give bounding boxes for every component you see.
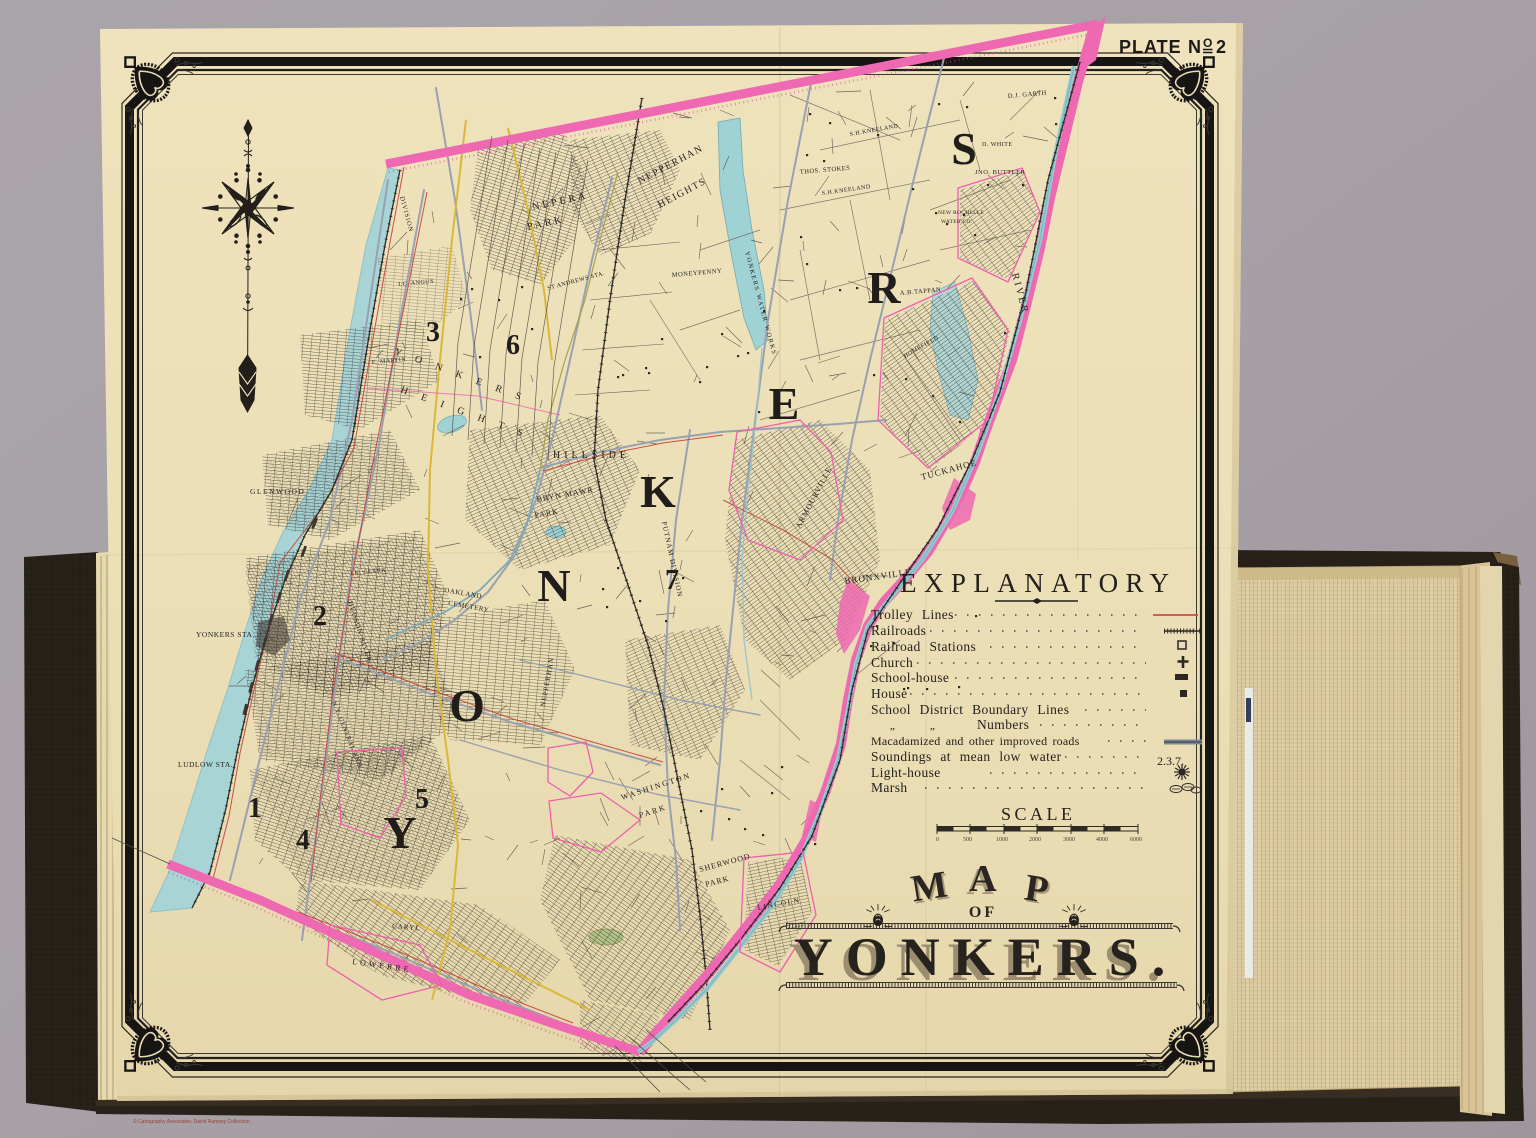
svg-text:3: 3: [426, 317, 440, 348]
svg-text:K: K: [640, 466, 676, 517]
svg-text:Railroad Stations: Railroad Stations: [871, 639, 976, 654]
svg-text:2: 2: [313, 601, 327, 632]
svg-text:School-house: School-house: [871, 670, 949, 685]
svg-text:GLENWOOD: GLENWOOD: [250, 487, 305, 496]
svg-text:JNO. BUTTLER: JNO. BUTTLER: [975, 169, 1026, 176]
svg-text:2: 2: [1216, 37, 1226, 57]
svg-text:E: E: [769, 378, 800, 429]
svg-text:S: S: [951, 123, 977, 174]
svg-text:„: „: [930, 720, 935, 732]
svg-text:Macadamized and other improved: Macadamized and other improved roads: [871, 734, 1080, 748]
svg-text:A: A: [969, 858, 997, 900]
svg-text:2000: 2000: [1029, 837, 1041, 843]
svg-text:Y: Y: [383, 807, 416, 858]
svg-text:6000: 6000: [1130, 837, 1142, 843]
svg-text:© Cartography Associates. Davi: © Cartography Associates. David Rumsey C…: [133, 1118, 251, 1125]
svg-text:Light-house: Light-house: [871, 765, 941, 780]
svg-text:N: N: [537, 560, 570, 611]
svg-text:0: 0: [936, 837, 939, 843]
svg-text:4: 4: [296, 825, 310, 856]
svg-text:500: 500: [963, 837, 972, 843]
svg-text:NEW ROCHELLE: NEW ROCHELLE: [938, 210, 984, 216]
svg-text:„: „: [890, 720, 895, 732]
svg-text:Soundings at mean low wate: Soundings at mean low water: [871, 749, 1062, 764]
svg-text:O: O: [1203, 36, 1212, 50]
svg-text:YONKERS STA.: YONKERS STA.: [196, 630, 255, 639]
svg-text:O: O: [449, 680, 485, 731]
svg-text:1000: 1000: [996, 837, 1008, 843]
svg-text:Marsh: Marsh: [871, 780, 908, 795]
svg-text:WATER CO.: WATER CO.: [941, 219, 973, 225]
svg-text:YONKERS.: YONKERS.: [794, 927, 1179, 987]
svg-text:EXPLANATORY: EXPLANATORY: [900, 568, 1175, 598]
svg-text:Church: Church: [871, 655, 913, 670]
svg-text:M: M: [908, 863, 950, 910]
svg-text:Railroads: Railroads: [871, 623, 926, 638]
svg-text:Numbers: Numbers: [977, 717, 1029, 732]
svg-text:R: R: [867, 262, 901, 313]
svg-text:3000: 3000: [1063, 837, 1075, 843]
svg-text:4000: 4000: [1096, 837, 1108, 843]
svg-text:6: 6: [506, 330, 520, 361]
svg-text:PLATE: PLATE: [1119, 37, 1182, 57]
svg-text:LUDLOW STA.: LUDLOW STA.: [178, 760, 233, 769]
svg-text:School District Boundary Li: School District Boundary Lines: [871, 702, 1069, 717]
svg-text:HILLSIDE: HILLSIDE: [553, 450, 630, 461]
svg-text:5: 5: [415, 784, 429, 815]
svg-text:D. WHITE: D. WHITE: [982, 142, 1013, 148]
svg-text:OF: OF: [969, 904, 997, 921]
svg-text:N: N: [1188, 37, 1201, 57]
svg-text:Trolley Lines: Trolley Lines: [871, 607, 954, 622]
svg-text:SCALE: SCALE: [1001, 804, 1077, 824]
svg-text:House: House: [871, 686, 908, 701]
svg-text:2.3.7.: 2.3.7.: [1157, 754, 1184, 768]
svg-text:1: 1: [248, 793, 262, 824]
